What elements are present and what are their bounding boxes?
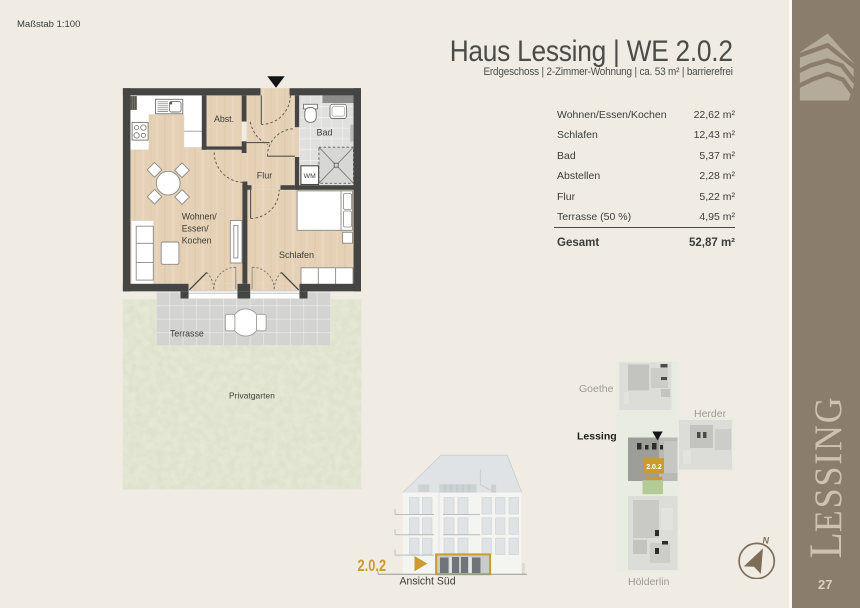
svg-text:Wohnen/: Wohnen/ [182, 212, 218, 222]
svg-text:Terrasse: Terrasse [170, 329, 204, 339]
svg-text:Bad: Bad [316, 128, 332, 138]
svg-text:Hölderlin: Hölderlin [628, 576, 670, 588]
svg-text:2.0.2: 2.0.2 [358, 558, 387, 576]
svg-text:N: N [763, 536, 770, 546]
svg-text:Flur: Flur [257, 171, 273, 181]
svg-text:Schlafen: Schlafen [279, 250, 314, 260]
svg-text:Lessing: Lessing [577, 431, 617, 443]
svg-text:WM: WM [304, 173, 316, 180]
svg-text:Abst.: Abst. [214, 114, 234, 124]
svg-text:Essen/: Essen/ [182, 224, 209, 234]
svg-text:Ansicht Süd: Ansicht Süd [399, 575, 455, 587]
svg-text:Privatgarten: Privatgarten [229, 391, 275, 401]
svg-text:Goethe: Goethe [579, 383, 614, 395]
svg-text:Kochen: Kochen [182, 236, 212, 246]
svg-text:2.0.2: 2.0.2 [646, 464, 662, 471]
svg-text:Herder: Herder [694, 408, 727, 420]
